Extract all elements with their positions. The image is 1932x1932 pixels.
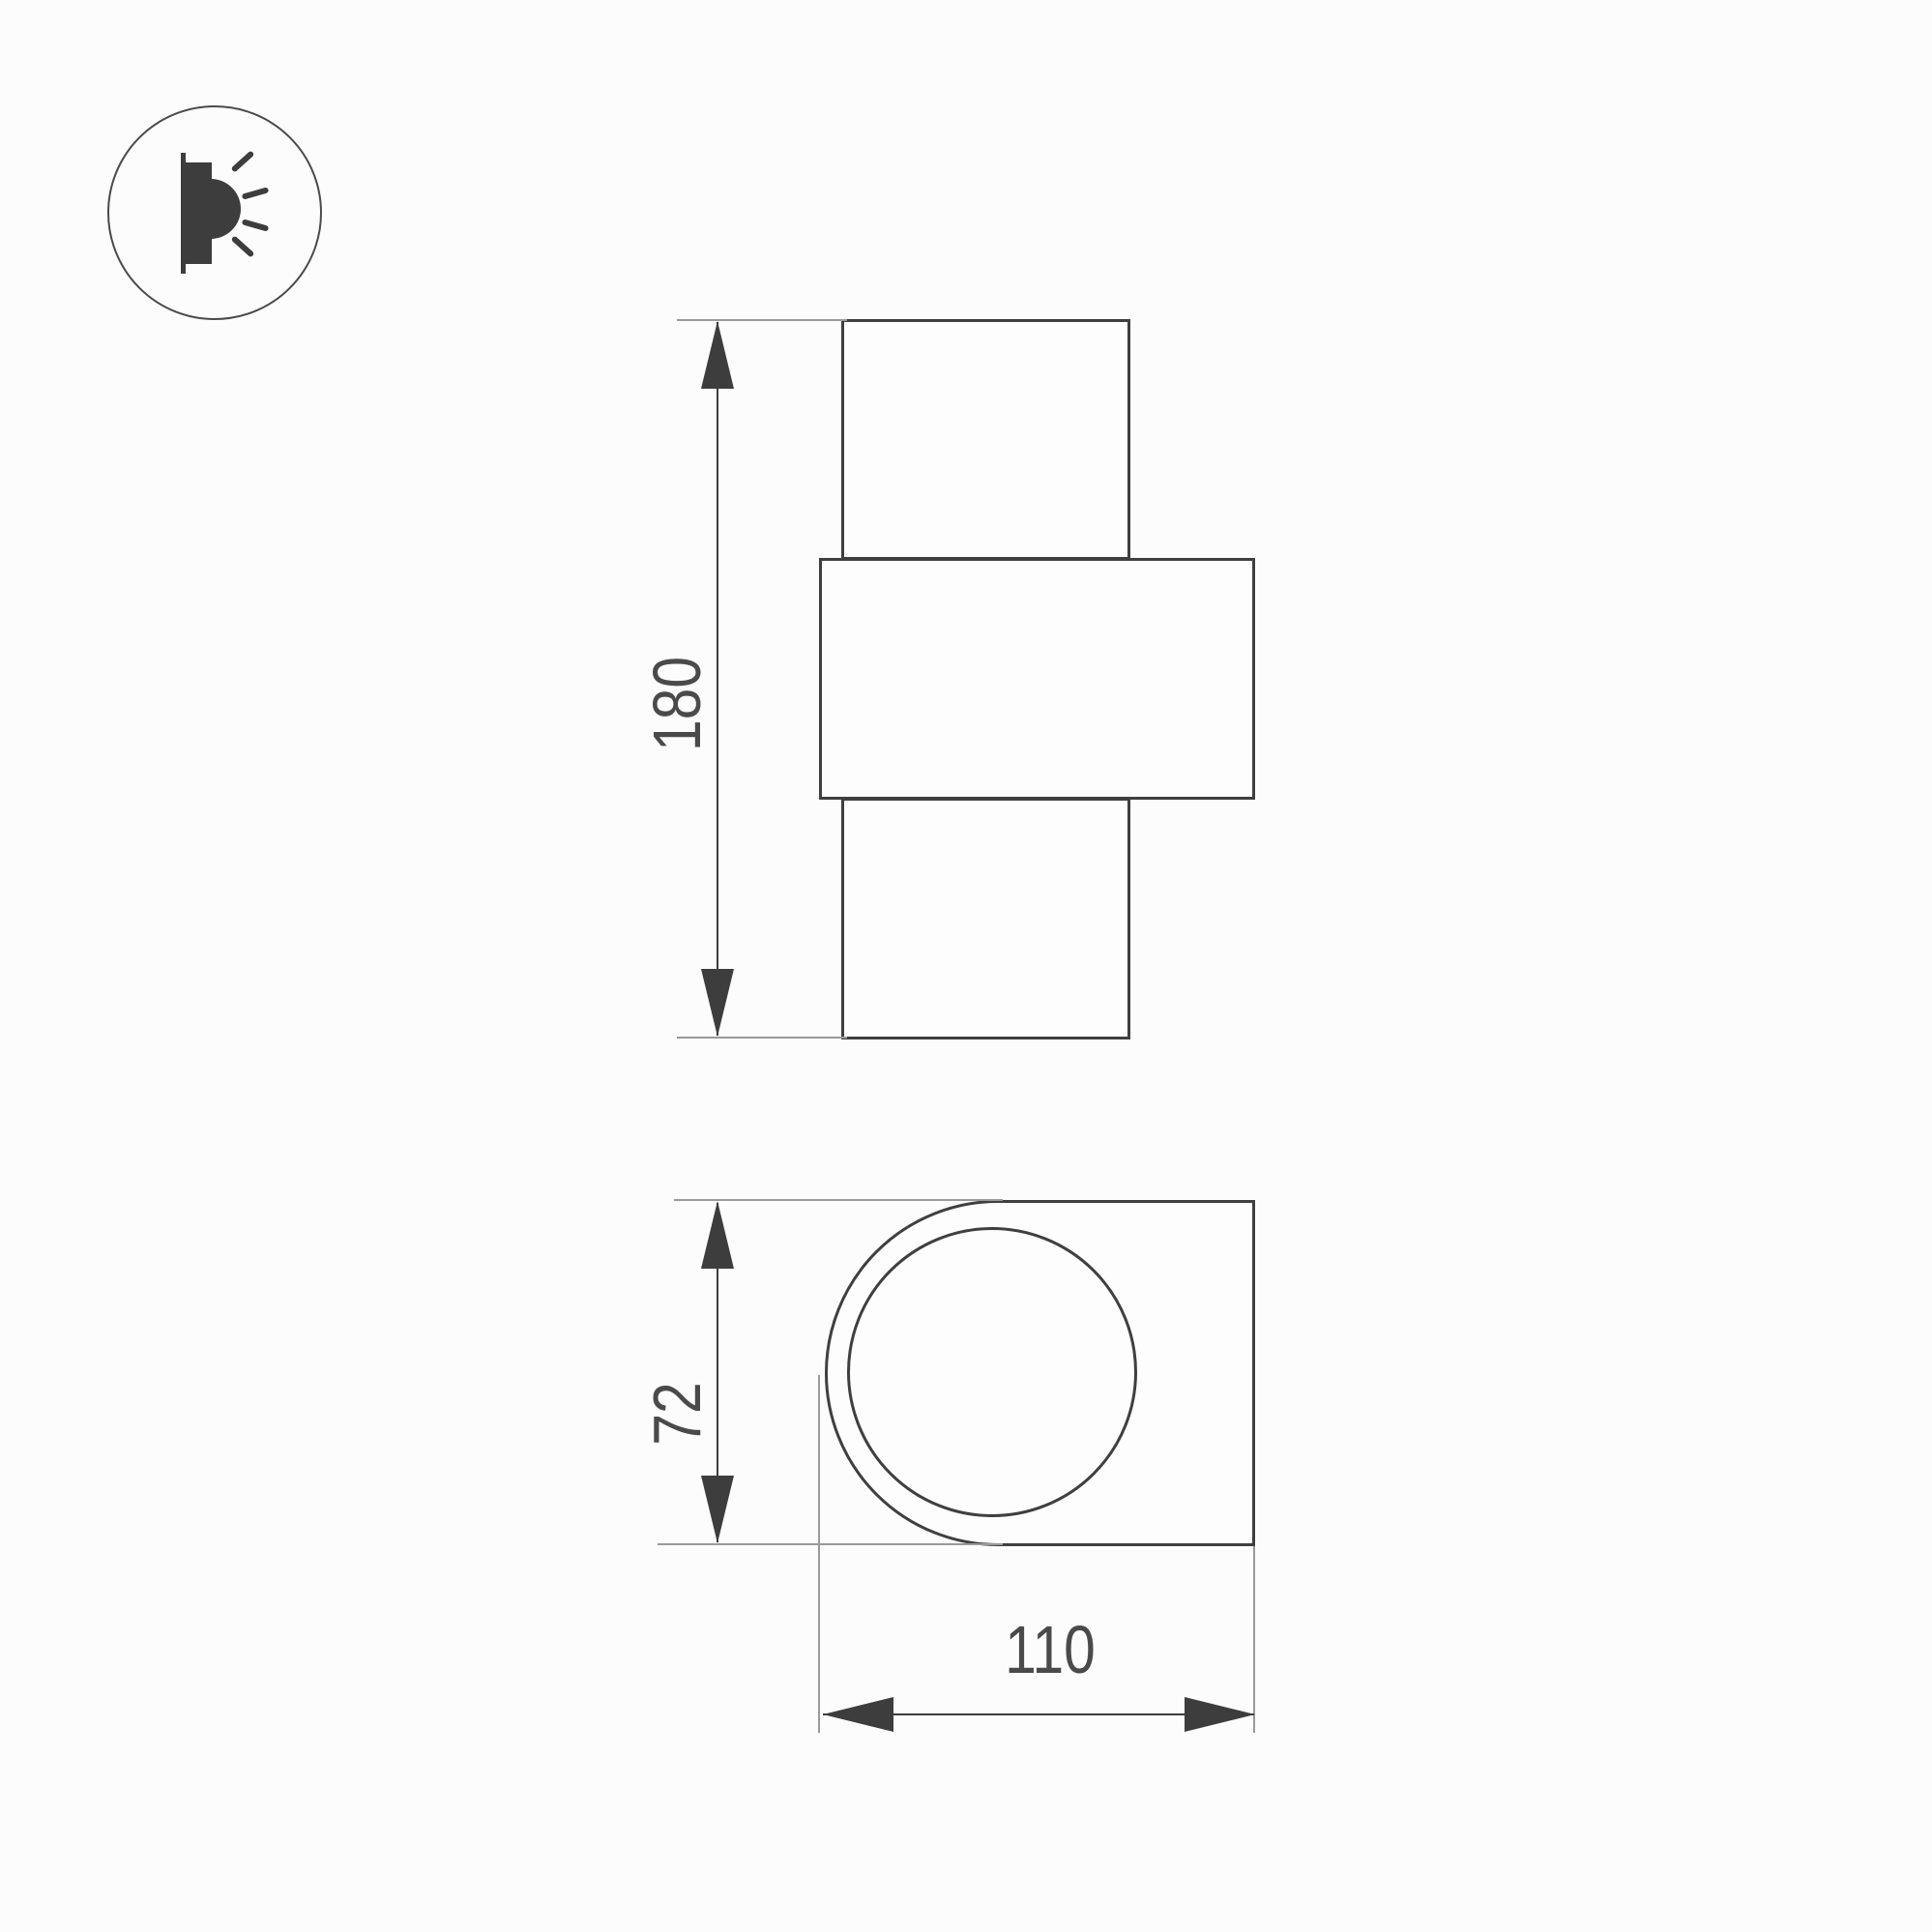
extension-line-top-view-bottom <box>658 1543 1003 1545</box>
dim-arrow-up-icon <box>701 321 734 389</box>
light-ray-icon <box>231 235 255 257</box>
dimension-line-180 <box>717 322 718 1036</box>
light-ray-icon <box>242 219 270 231</box>
wall-light-icon-badge <box>107 105 322 320</box>
dim-arrow-down-icon <box>701 1476 734 1543</box>
dim-arrow-down-icon <box>701 969 734 1037</box>
dim-arrow-up-icon <box>701 1201 734 1269</box>
dimension-label-height-180: 180 <box>643 657 711 751</box>
top-view-lens-circle <box>847 1227 1137 1517</box>
extension-line-front-bottom <box>677 1037 847 1039</box>
dimension-label-width-110: 110 <box>1005 1616 1096 1683</box>
front-view-top-cylinder <box>841 319 1130 560</box>
front-view-middle-body <box>819 558 1255 800</box>
dimension-label-depth-72: 72 <box>643 1382 711 1445</box>
extension-line-110-left <box>818 1375 820 1733</box>
front-view-bottom-cylinder <box>841 798 1130 1039</box>
light-ray-icon <box>242 187 270 199</box>
light-ray-icon <box>231 150 255 172</box>
dim-arrow-right-icon <box>1185 1697 1255 1732</box>
dim-arrow-left-icon <box>823 1697 893 1732</box>
light-emission-dome-icon <box>181 179 241 239</box>
dimension-drawing-canvas: 180 72 110 <box>0 0 1932 1932</box>
